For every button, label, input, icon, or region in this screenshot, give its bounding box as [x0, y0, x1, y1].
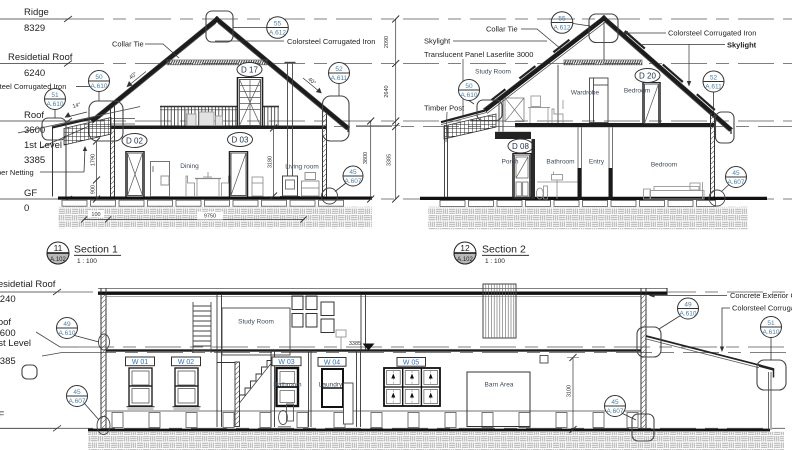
svg-text:W 04: W 04	[324, 359, 340, 366]
svg-text:52: 52	[710, 75, 718, 82]
svg-text:Collar Tie: Collar Tie	[112, 40, 144, 49]
svg-text:D 17: D 17	[241, 66, 258, 75]
svg-text:3385: 3385	[0, 356, 16, 367]
svg-text:Living room: Living room	[285, 164, 319, 171]
svg-text:A.610: A.610	[680, 311, 697, 318]
svg-text:Laundry: Laundry	[319, 382, 343, 389]
svg-text:A.612: A.612	[554, 25, 571, 32]
svg-text:52: 52	[335, 66, 343, 73]
svg-text:3180: 3180	[268, 156, 274, 168]
svg-text:A.607: A.607	[607, 408, 624, 415]
svg-text:3385: 3385	[24, 155, 45, 166]
svg-text:45: 45	[349, 169, 357, 176]
svg-text:100: 100	[91, 212, 100, 218]
svg-text:51: 51	[51, 92, 59, 99]
svg-text:Study Room: Study Room	[238, 319, 274, 326]
svg-text:A.610: A.610	[91, 83, 108, 90]
svg-text:D 03: D 03	[232, 136, 249, 145]
svg-text:W 01: W 01	[132, 359, 148, 366]
svg-text:3385: 3385	[387, 154, 393, 166]
svg-text:6240: 6240	[24, 68, 45, 79]
svg-text:1st Level: 1st Level	[0, 338, 31, 349]
svg-text:Collar Tie: Collar Tie	[486, 25, 518, 34]
svg-text:49: 49	[684, 302, 692, 309]
svg-text:11: 11	[54, 243, 63, 253]
svg-text:49: 49	[63, 321, 71, 328]
svg-text:8329: 8329	[24, 23, 45, 34]
svg-text:50: 50	[465, 83, 473, 90]
svg-text:9750: 9750	[204, 214, 216, 220]
svg-text:Bathroom: Bathroom	[546, 159, 574, 166]
svg-text:1 : 100: 1 : 100	[485, 258, 505, 265]
svg-text:A.610: A.610	[47, 101, 64, 108]
svg-text:Porch: Porch	[502, 159, 519, 166]
svg-text:Section 1: Section 1	[74, 244, 118, 256]
svg-text:Dining: Dining	[180, 163, 199, 170]
svg-text:W 05: W 05	[403, 359, 419, 366]
svg-text:A.607: A.607	[69, 398, 86, 405]
svg-text:2640: 2640	[384, 85, 390, 97]
svg-text:Roof: Roof	[0, 317, 11, 328]
svg-text:A.612: A.612	[269, 30, 286, 37]
svg-text:900: 900	[91, 185, 97, 194]
svg-text:D 02: D 02	[126, 137, 143, 146]
svg-text:Ridge: Ridge	[24, 7, 49, 18]
svg-text:6240: 6240	[0, 294, 16, 305]
svg-text:Colorsteel Corrugated Iron: Colorsteel Corrugated Iron	[287, 37, 375, 46]
svg-text:1 : 100: 1 : 100	[77, 258, 97, 265]
svg-text:A.610: A.610	[461, 92, 478, 99]
svg-text:D 20: D 20	[639, 72, 656, 81]
svg-text:55: 55	[558, 16, 566, 23]
svg-text:3800: 3800	[363, 152, 369, 164]
svg-text:Colorsteel Corrugated Iron: Colorsteel Corrugated Iron	[668, 29, 756, 38]
svg-text:D 08: D 08	[512, 142, 529, 151]
svg-text:1790: 1790	[91, 154, 97, 166]
svg-text:Timber Post: Timber Post	[424, 104, 465, 113]
svg-text:GF: GF	[24, 188, 37, 199]
svg-text:W 02: W 02	[178, 359, 194, 366]
svg-text:Translucent Panel Laserlite 30: Translucent Panel Laserlite 3000	[424, 50, 533, 59]
svg-text:Skylight: Skylight	[727, 41, 757, 50]
svg-text:Study Room: Study Room	[475, 69, 511, 76]
svg-text:A.611: A.611	[331, 75, 348, 82]
svg-text:12: 12	[460, 243, 470, 253]
svg-text:3100: 3100	[567, 385, 573, 397]
svg-text:Section 2: Section 2	[482, 244, 526, 256]
svg-text:45: 45	[611, 399, 619, 406]
svg-text:Residetial Roof: Residetial Roof	[8, 52, 73, 63]
svg-text:A.607: A.607	[728, 179, 745, 186]
svg-text:45: 45	[732, 170, 740, 177]
svg-text:A.610: A.610	[59, 330, 76, 337]
svg-text:0: 0	[24, 203, 29, 214]
svg-text:Colorsteel Corrugated Iron: Colorsteel Corrugated Iron	[732, 304, 792, 313]
svg-text:GF: GF	[0, 410, 4, 421]
svg-text:W 03: W 03	[278, 359, 294, 366]
svg-text:A.607: A.607	[345, 178, 362, 185]
svg-text:A.102: A.102	[50, 257, 66, 263]
svg-text:Barn Area: Barn Area	[485, 382, 514, 389]
svg-text:Residetial Roof: Residetial Roof	[0, 279, 56, 290]
svg-text:Roof: Roof	[24, 110, 44, 121]
svg-text:2090: 2090	[384, 36, 390, 48]
svg-text:45: 45	[73, 389, 81, 396]
svg-text:1st Level: 1st Level	[24, 140, 62, 151]
svg-text:Concrete Exterior Cladding: Concrete Exterior Cladding	[730, 291, 792, 300]
svg-text:A.102: A.102	[457, 257, 473, 263]
svg-text:Bedroom: Bedroom	[624, 88, 650, 95]
svg-text:Skylight: Skylight	[424, 37, 451, 46]
svg-text:A.611: A.611	[705, 84, 722, 91]
svg-text:Bathroom: Bathroom	[273, 382, 301, 389]
svg-text:50: 50	[95, 74, 103, 81]
svg-text:3385: 3385	[349, 341, 361, 347]
svg-text:ber Netting: ber Netting	[0, 168, 34, 177]
svg-text:A.610: A.610	[763, 329, 780, 336]
svg-text:55: 55	[274, 21, 282, 28]
svg-text:51: 51	[767, 320, 775, 327]
svg-text:Entry: Entry	[589, 159, 605, 166]
svg-text:Wardrobe: Wardrobe	[571, 90, 600, 97]
svg-text:Bedroom: Bedroom	[651, 162, 677, 169]
